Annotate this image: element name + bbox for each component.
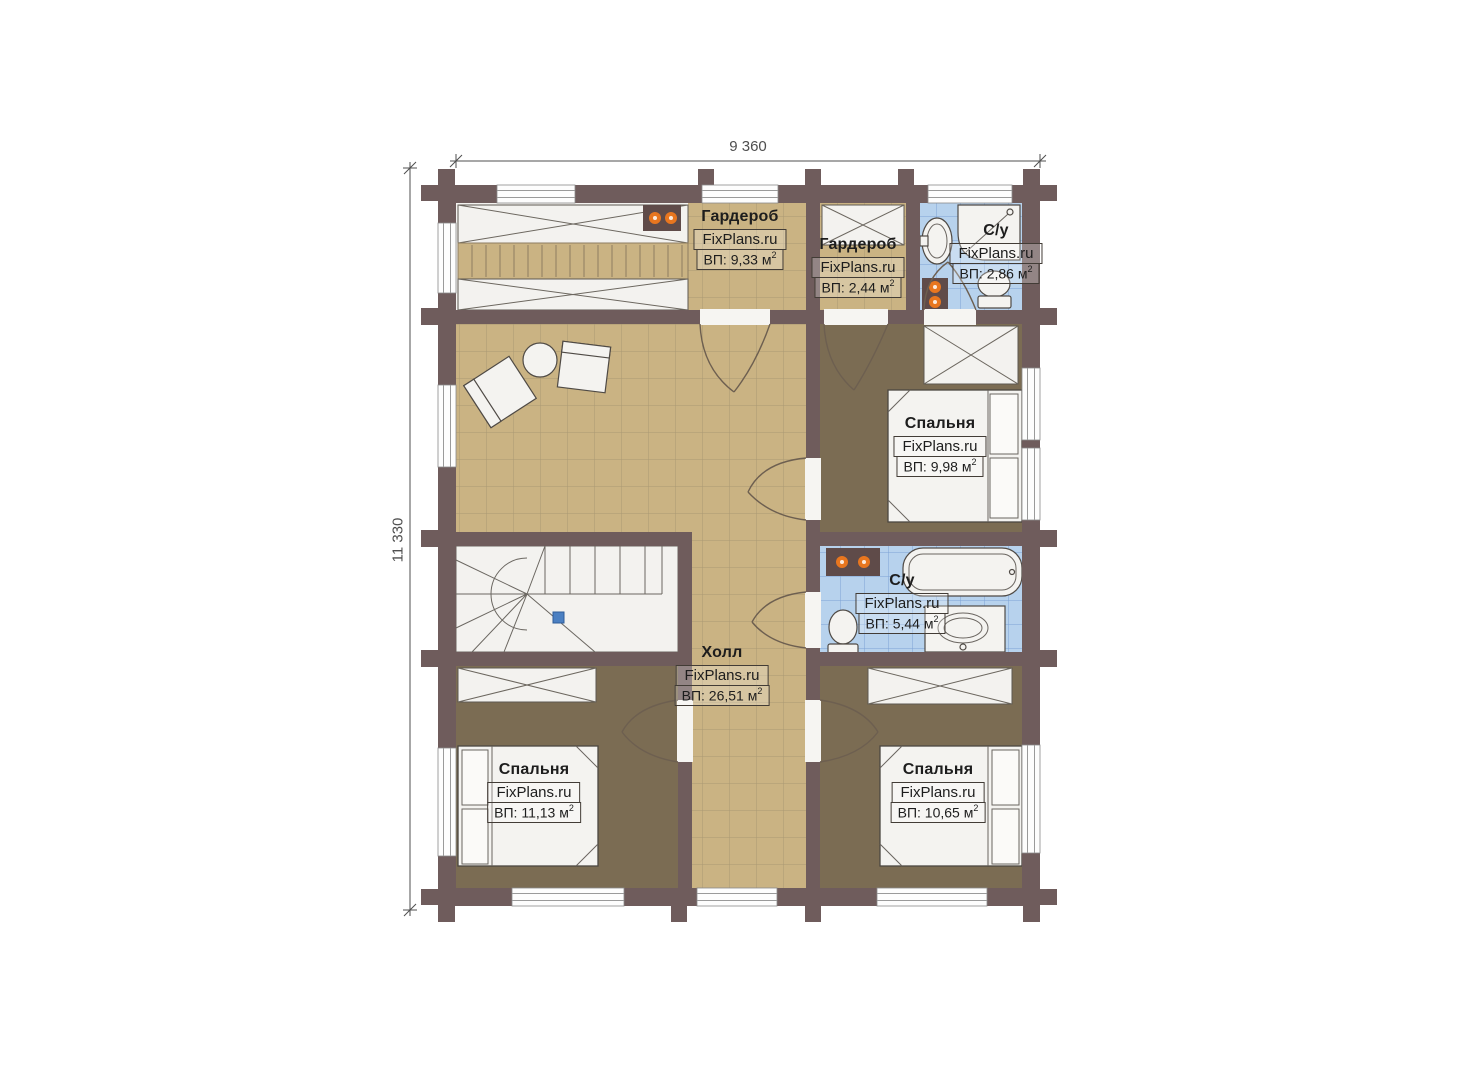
closet-icon (458, 668, 596, 702)
hanging-rail-icon (458, 243, 688, 279)
window (928, 185, 1012, 203)
wall-segment (806, 652, 1022, 666)
armchair-icon (557, 341, 610, 393)
window (497, 185, 575, 203)
sink-icon (925, 606, 1005, 652)
window (1022, 745, 1040, 853)
floor-plan-page: { "plan": { "dimensions": { "top": "9 36… (0, 0, 1474, 1080)
closet-icon (868, 668, 1012, 704)
radiator-icon (643, 205, 681, 231)
toilet-icon (828, 610, 858, 654)
window (438, 223, 456, 293)
bed-icon (458, 746, 598, 866)
floor-wardrobe-large-tile (688, 203, 806, 310)
window (438, 748, 456, 856)
radiator-icon (826, 548, 880, 576)
window (1022, 368, 1040, 440)
closet-icon (458, 279, 688, 310)
toilet-icon (978, 271, 1011, 308)
window (702, 185, 778, 203)
window (877, 888, 987, 906)
wall-segment (456, 532, 692, 546)
wall-segment (456, 652, 692, 666)
wall-segment (906, 185, 920, 310)
floor-corridor (692, 532, 806, 888)
window (512, 888, 624, 906)
window (438, 385, 456, 467)
window (1022, 448, 1040, 520)
bed-icon (880, 746, 1022, 866)
coffee-table-icon (523, 343, 557, 377)
closet-icon (822, 205, 904, 245)
shower-icon (958, 205, 1020, 260)
floor-plan-drawing (0, 0, 1474, 1080)
bathtub-icon (903, 548, 1022, 596)
wall-segment (806, 185, 820, 888)
bed-icon (888, 390, 1022, 522)
stair-marker (553, 612, 564, 623)
window (697, 888, 777, 906)
floor-hall (456, 324, 806, 532)
wall-segment (806, 532, 1022, 546)
closet-icon (924, 326, 1018, 384)
